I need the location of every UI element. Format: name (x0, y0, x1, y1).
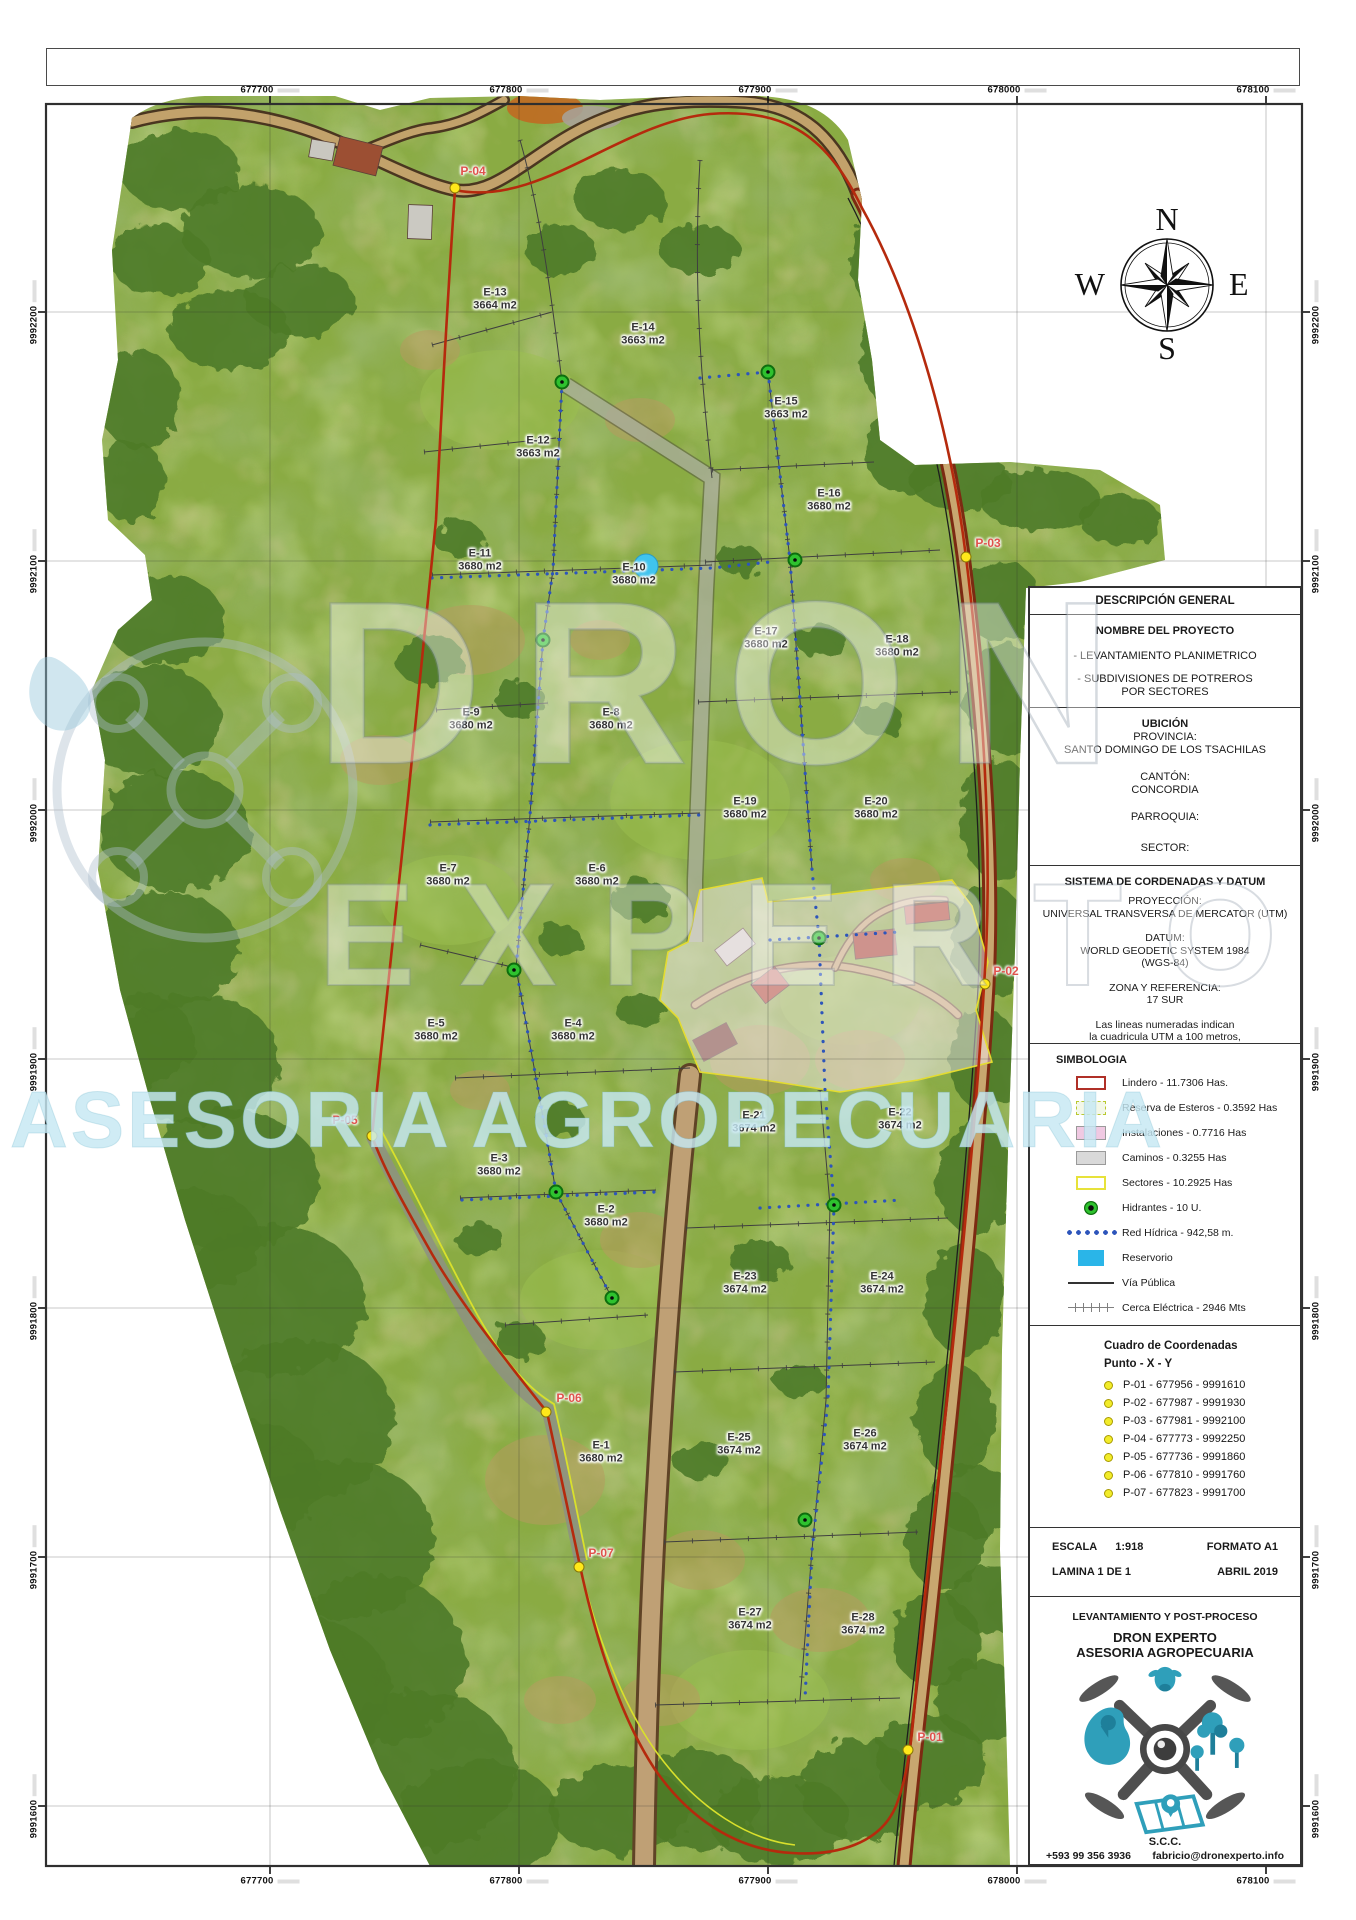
legend-label: Lindero - 11.7306 Has. (1122, 1077, 1228, 1089)
nombre-item: - SUBDIVISIONES DE POTREROS POR SECTORES (1030, 673, 1300, 699)
hydrant-icon (550, 1186, 563, 1199)
compass-s-label: S (1158, 330, 1176, 366)
hydrant-icon (556, 376, 569, 389)
reservorio-swatch (1078, 1250, 1104, 1266)
empresa-email: fabricio@dronexperto.info (1152, 1850, 1284, 1862)
hydrant-icon (508, 964, 521, 977)
empresa-scc: S.C.C. (1030, 1836, 1300, 1848)
legend-item: Instalaciones - 0.7716 Has (1030, 1120, 1300, 1145)
section-ubicacion: UBICIÓN PROVINCIA: SANTO DOMINGO DE LOS … (1030, 708, 1300, 866)
coordinate-row: P-02 - 677987 - 9991930 (1030, 1394, 1300, 1412)
hydrant-icon (813, 932, 826, 945)
caminos-swatch (1076, 1151, 1106, 1165)
hydrant-icon (762, 366, 775, 379)
panel-header: DESCRIPCIÓN GENERAL (1030, 588, 1300, 615)
compass-e-label: E (1229, 266, 1249, 302)
building (407, 205, 432, 240)
legend-label: Reserva de Esteros - 0.3592 Has (1122, 1102, 1277, 1114)
legend-item: Vía Pública (1030, 1270, 1300, 1295)
point-bullet-icon (1104, 1471, 1113, 1480)
legend-item: Caminos - 0.3255 Has (1030, 1145, 1300, 1170)
point-bullet-icon (1104, 1435, 1113, 1444)
sistema-value: WORLD GEODETIC SYSTEM 1984 (WGS-84) (1030, 945, 1300, 970)
coordenadas-title: Cuadro de Coordenadas (1030, 1326, 1300, 1354)
title-strip (46, 48, 1300, 86)
ubicacion-key: PROVINCIA: (1030, 731, 1300, 744)
coordinate-row: P-06 - 677810 - 9991760 (1030, 1466, 1300, 1484)
sistema-key: ZONA Y REFERENCIA: (1030, 982, 1300, 995)
reserva-swatch (1076, 1101, 1106, 1115)
ubicacion-key: CANTÓN: (1030, 771, 1300, 784)
ubicacion-value: SANTO DOMINGO DE LOS TSACHILAS (1030, 744, 1300, 757)
section-empresa: LEVANTAMIENTO Y POST-PROCESO DRON EXPERT… (1030, 1597, 1300, 1868)
section-nombre: NOMBRE DEL PROYECTO - LEVANTAMIENTO PLAN… (1030, 615, 1300, 708)
instalaciones-swatch (1076, 1126, 1106, 1140)
map-pin-icon (1137, 1794, 1203, 1832)
hydrant-icon (606, 1292, 619, 1305)
map-sheet: N S E W 67770067770067780067780067790067… (0, 0, 1356, 1920)
instalaciones-overlay (660, 878, 992, 1092)
coordinates-list: P-01 - 677956 - 9991610P-02 - 677987 - 9… (1030, 1376, 1300, 1502)
north-compass: N S E W (1075, 201, 1249, 366)
coordenadas-subtitle: Punto - X - Y (1030, 1354, 1300, 1376)
legend-item: Hidrantes - 10 U. (1030, 1195, 1300, 1220)
camera-icon (1143, 1727, 1186, 1770)
point-bullet-icon (1104, 1381, 1113, 1390)
coordinate-row: P-05 - 677736 - 9991860 (1030, 1448, 1300, 1466)
nombre-title: NOMBRE DEL PROYECTO (1030, 625, 1300, 638)
hydrant-icon (828, 1199, 841, 1212)
section-sistema: SISTEMA DE CORDENADAS Y DATUM PROYECCIÓN… (1030, 866, 1300, 1044)
empresa-name: DRON EXPERTO (1030, 1630, 1300, 1645)
sistema-note: Las lineas numeradas indican la cuadricu… (1030, 1019, 1300, 1045)
legend-label: Vía Pública (1122, 1277, 1175, 1289)
hidrantes-swatch (1084, 1201, 1098, 1215)
section-simbologia: SIMBOLOGIA Lindero - 11.7306 Has.Reserva… (1030, 1044, 1300, 1326)
legend-item: Sectores - 10.2925 Has (1030, 1170, 1300, 1195)
cow-icon (1147, 1666, 1182, 1691)
empresa-header: LEVANTAMIENTO Y POST-PROCESO (1030, 1611, 1300, 1624)
sistema-value: 17 SUR (1030, 994, 1300, 1007)
hydrant-icon (789, 554, 802, 567)
compass-w-label: W (1075, 266, 1106, 302)
lamina-value: LAMINA 1 DE 1 (1052, 1566, 1131, 1578)
point-bullet-icon (1104, 1489, 1113, 1498)
lindero-swatch (1076, 1076, 1106, 1090)
legend-label: Red Hídrica - 942,58 m. (1122, 1227, 1233, 1239)
sistema-key: PROYECCIÓN: (1030, 895, 1300, 908)
legend-label: Sectores - 10.2925 Has (1122, 1177, 1232, 1189)
section-coordenadas: Cuadro de Coordenadas Punto - X - Y P-01… (1030, 1326, 1300, 1528)
legend-item: Reservorio (1030, 1245, 1300, 1270)
ubicacion-key: SECTOR: (1030, 842, 1300, 855)
legend-item: Lindero - 11.7306 Has. (1030, 1070, 1300, 1095)
company-logo (1070, 1664, 1260, 1836)
info-panel: DESCRIPCIÓN GENERAL NOMBRE DEL PROYECTO … (1028, 586, 1302, 1866)
orthophoto (40, 90, 1180, 1880)
legend-label: Cerca Eléctrica - 2946 Mts (1122, 1302, 1246, 1314)
section-escala: ESCALA 1:918 FORMATO A1 LAMINA 1 DE 1 AB… (1030, 1528, 1300, 1597)
cerca-swatch (1068, 1303, 1114, 1312)
escala-label: ESCALA (1052, 1541, 1097, 1553)
sistema-title: SISTEMA DE CORDENADAS Y DATUM (1030, 876, 1300, 889)
empresa-name: ASESORIA AGROPECUARIA (1030, 1645, 1300, 1660)
nombre-item: - LEVANTAMIENTO PLANIMETRICO (1030, 650, 1300, 663)
ubicacion-key: PARROQUIA: (1030, 811, 1300, 824)
simbologia-title: SIMBOLOGIA (1030, 1044, 1300, 1070)
formato-value: FORMATO A1 (1207, 1541, 1278, 1553)
compass-n-label: N (1155, 201, 1178, 237)
empresa-phone: +593 99 356 3936 (1046, 1850, 1131, 1862)
ecuador-map-icon (1084, 1707, 1130, 1764)
sistema-key: DATUM: (1030, 932, 1300, 945)
coordinate-row: P-04 - 677773 - 9992250 (1030, 1430, 1300, 1448)
via-publica-swatch (1068, 1282, 1114, 1284)
coordinate-row: P-03 - 677981 - 9992100 (1030, 1412, 1300, 1430)
sistema-value: UNIVERSAL TRANSVERSA DE MERCATOR (UTM) (1030, 908, 1300, 921)
legend-label: Caminos - 0.3255 Has (1122, 1152, 1226, 1164)
ubicacion-value: CONCORDIA (1030, 784, 1300, 797)
coordinate-row: P-07 - 677823 - 9991700 (1030, 1484, 1300, 1502)
fecha-value: ABRIL 2019 (1217, 1566, 1278, 1578)
legend-item: Cerca Eléctrica - 2946 Mts (1030, 1295, 1300, 1320)
watermark-drone-pin (29, 657, 91, 731)
escala-value: 1:918 (1115, 1541, 1143, 1553)
legend-label: Hidrantes - 10 U. (1122, 1202, 1201, 1214)
legend-item: Red Hídrica - 942,58 m. (1030, 1220, 1300, 1245)
building (309, 139, 336, 161)
coordinate-row: P-01 - 677956 - 9991610 (1030, 1376, 1300, 1394)
hydrant-icon (799, 1514, 812, 1527)
legend-list: Lindero - 11.7306 Has.Reserva de Esteros… (1030, 1070, 1300, 1320)
sectores-swatch (1076, 1176, 1106, 1190)
red-hidrica-swatch (1065, 1230, 1117, 1235)
legend-item: Reserva de Esteros - 0.3592 Has (1030, 1095, 1300, 1120)
point-bullet-icon (1104, 1453, 1113, 1462)
ubicacion-title: UBICIÓN (1030, 718, 1300, 731)
legend-label: Instalaciones - 0.7716 Has (1122, 1127, 1246, 1139)
point-bullet-icon (1104, 1417, 1113, 1426)
legend-label: Reservorio (1122, 1252, 1173, 1264)
reservoir-icon (634, 554, 658, 578)
point-bullet-icon (1104, 1399, 1113, 1408)
hydrant-icon (537, 634, 550, 647)
